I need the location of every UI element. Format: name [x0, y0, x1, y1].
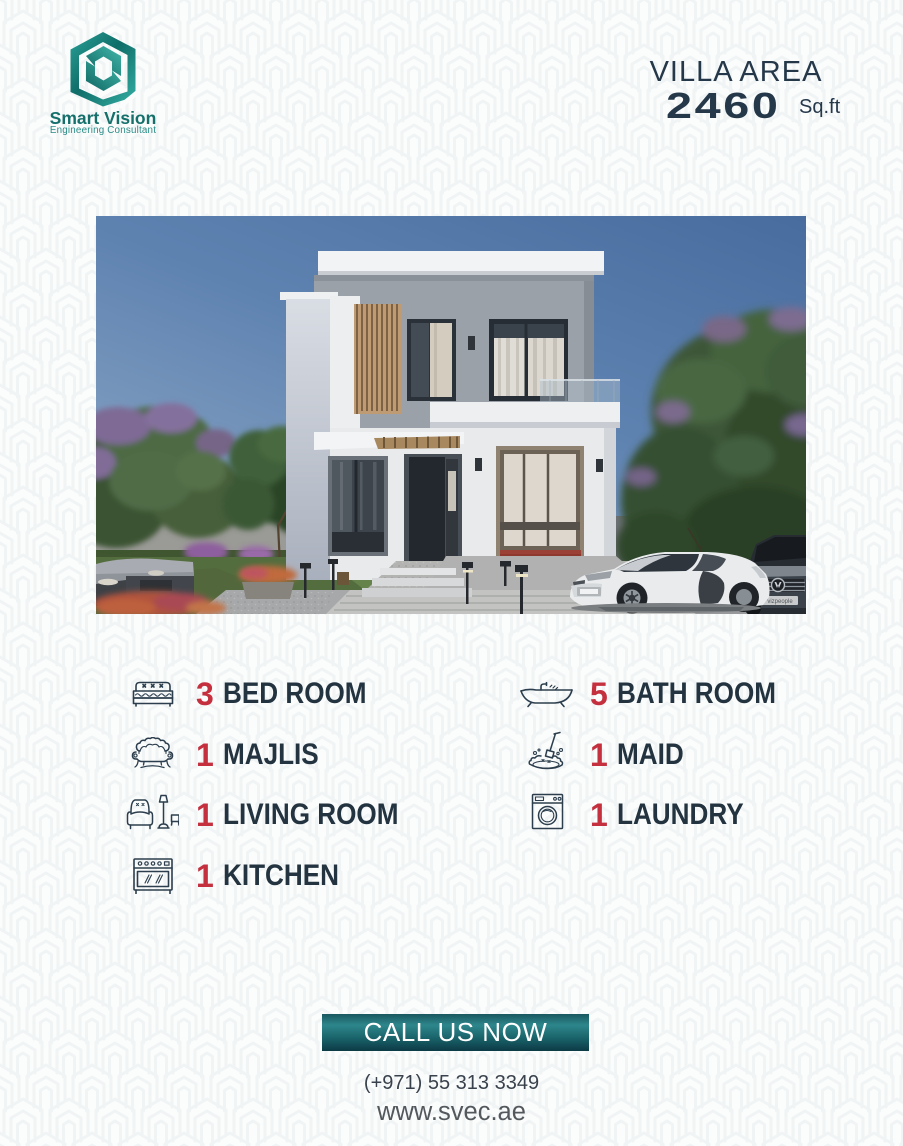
- svg-text:vizpeople: vizpeople: [767, 599, 793, 605]
